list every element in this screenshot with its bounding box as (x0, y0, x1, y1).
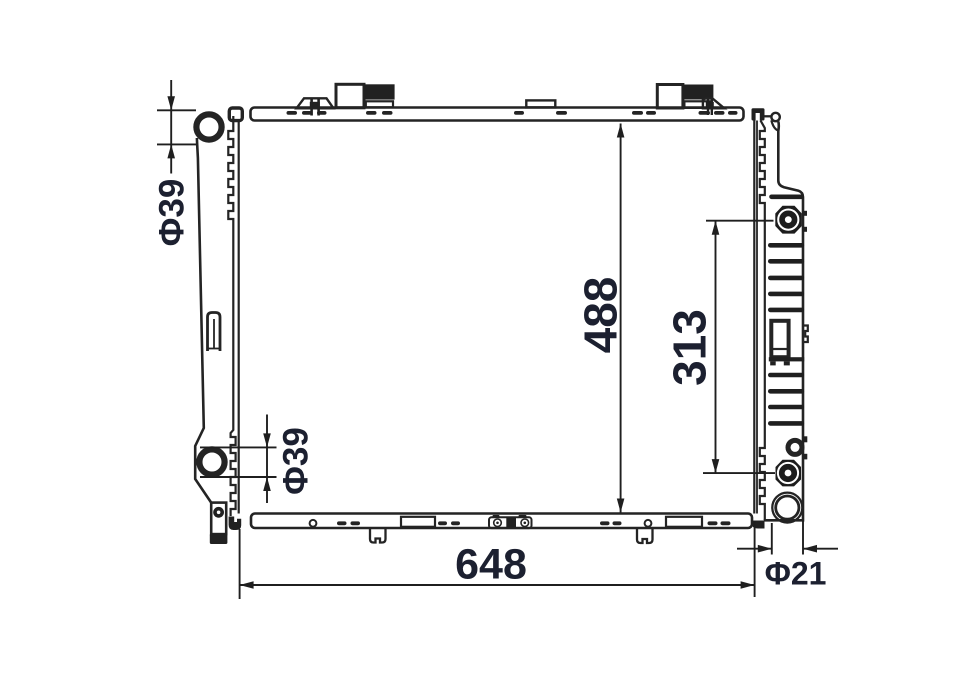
svg-text:313: 313 (664, 309, 716, 386)
svg-text:Φ39: Φ39 (153, 179, 192, 247)
svg-text:Φ39: Φ39 (277, 427, 316, 495)
svg-text:648: 648 (455, 541, 527, 589)
svg-text:488: 488 (575, 277, 627, 354)
svg-text:Φ21: Φ21 (765, 556, 827, 592)
